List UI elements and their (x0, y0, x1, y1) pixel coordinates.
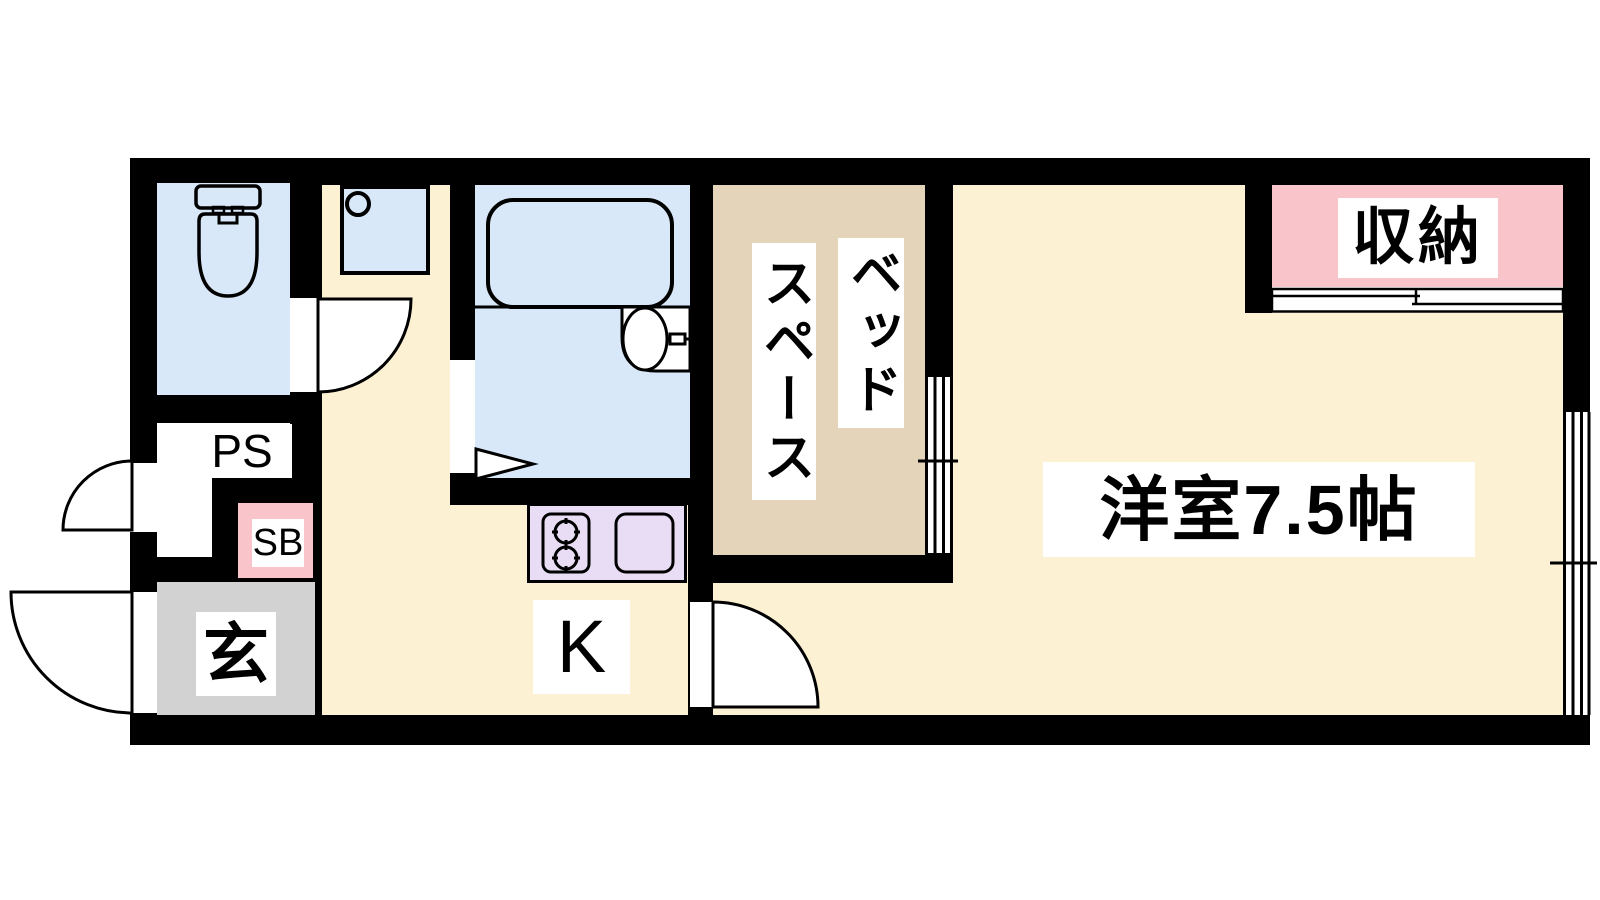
kitchen-counter (527, 503, 687, 583)
bed-space-partition-window (925, 377, 953, 553)
closet-label: 収納 (1338, 198, 1498, 278)
service-door-swing-icon (63, 461, 132, 530)
pipe-space-floor-lower (157, 478, 212, 557)
service-door-opening (130, 463, 157, 532)
closet-left-wall (1245, 185, 1272, 313)
bathroom-floor (475, 185, 690, 478)
bed-space-label-space: スペース (752, 243, 816, 500)
bed-space-label-bed: ベッド (838, 238, 904, 428)
entrance-label: 玄 (196, 612, 276, 696)
washbasin-icon (340, 185, 430, 275)
shoe-box-label: SB (252, 519, 304, 567)
western-room-label: 洋室7.5帖 (1043, 462, 1475, 557)
right-wall-window (1563, 412, 1590, 715)
entrance-door-opening (130, 592, 157, 713)
bath-door-opening (450, 360, 475, 473)
kitchen-door-opening (690, 602, 713, 707)
toilet-room-floor (157, 183, 290, 395)
closet-sliding-door (1272, 287, 1563, 313)
toilet-door-opening (290, 298, 322, 392)
entrance-door-swing-icon (11, 592, 132, 713)
floor-plan-canvas: 収納 洋室7.5帖 ベッド スペース PS SB 玄 K (0, 0, 1600, 900)
kitchen-label: K (533, 600, 630, 694)
western-room-floor-lower (713, 583, 953, 715)
pipe-space-label: PS (192, 424, 292, 478)
